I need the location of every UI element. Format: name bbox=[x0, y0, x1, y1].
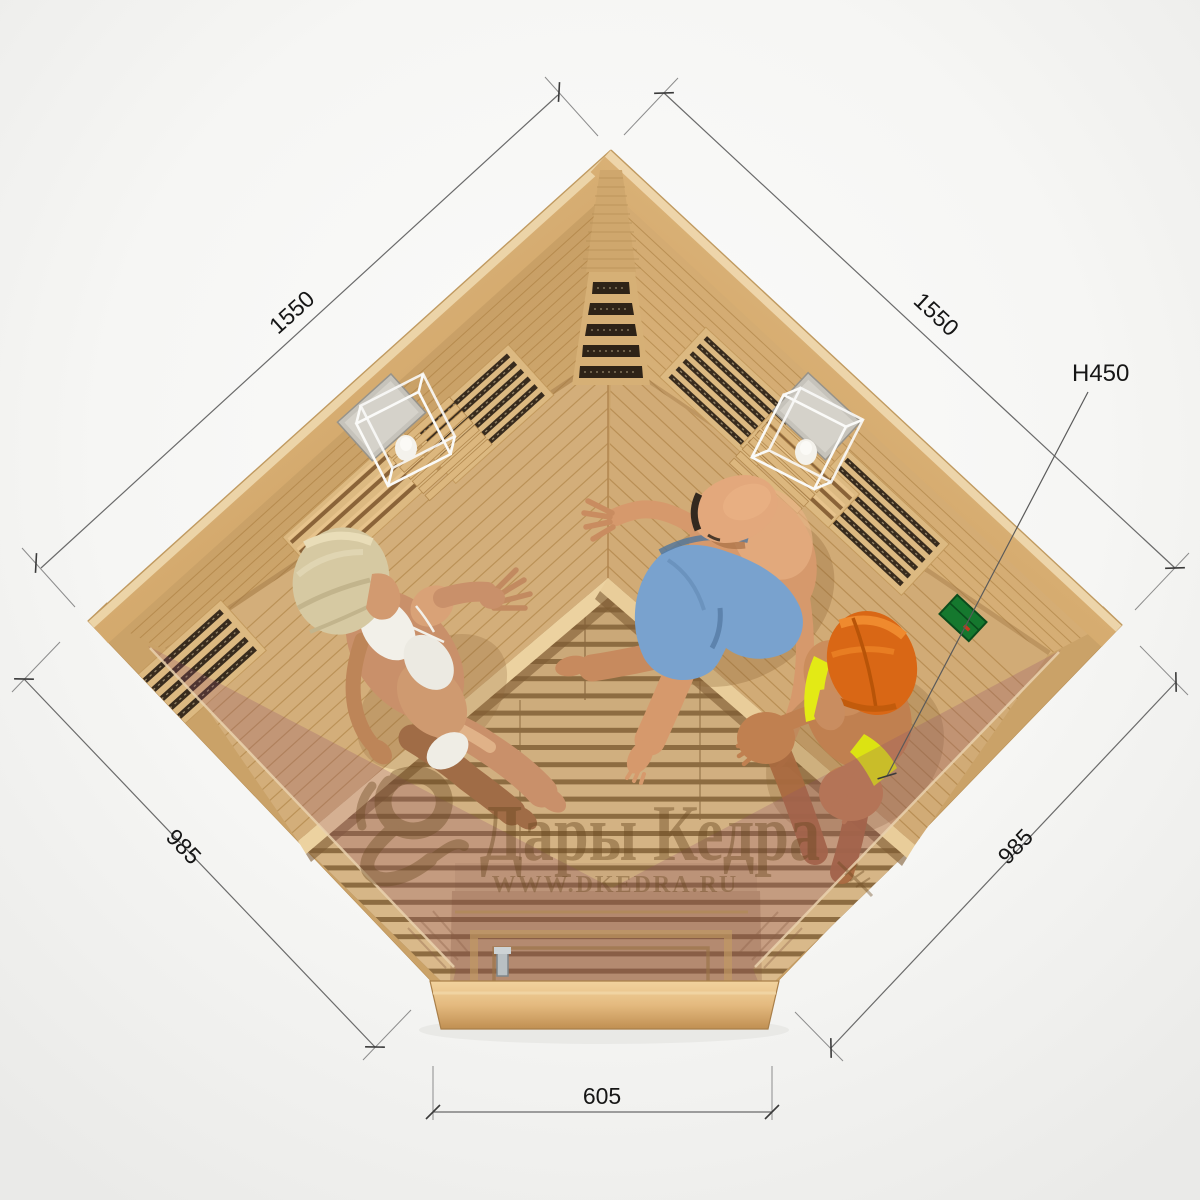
svg-text:605: 605 bbox=[583, 1083, 621, 1109]
svg-text:Дары Кедра: Дары Кедра bbox=[480, 789, 820, 878]
svg-text:H450: H450 bbox=[1072, 360, 1129, 387]
svg-text:WWW.DKEDRA.RU: WWW.DKEDRA.RU bbox=[492, 872, 738, 898]
